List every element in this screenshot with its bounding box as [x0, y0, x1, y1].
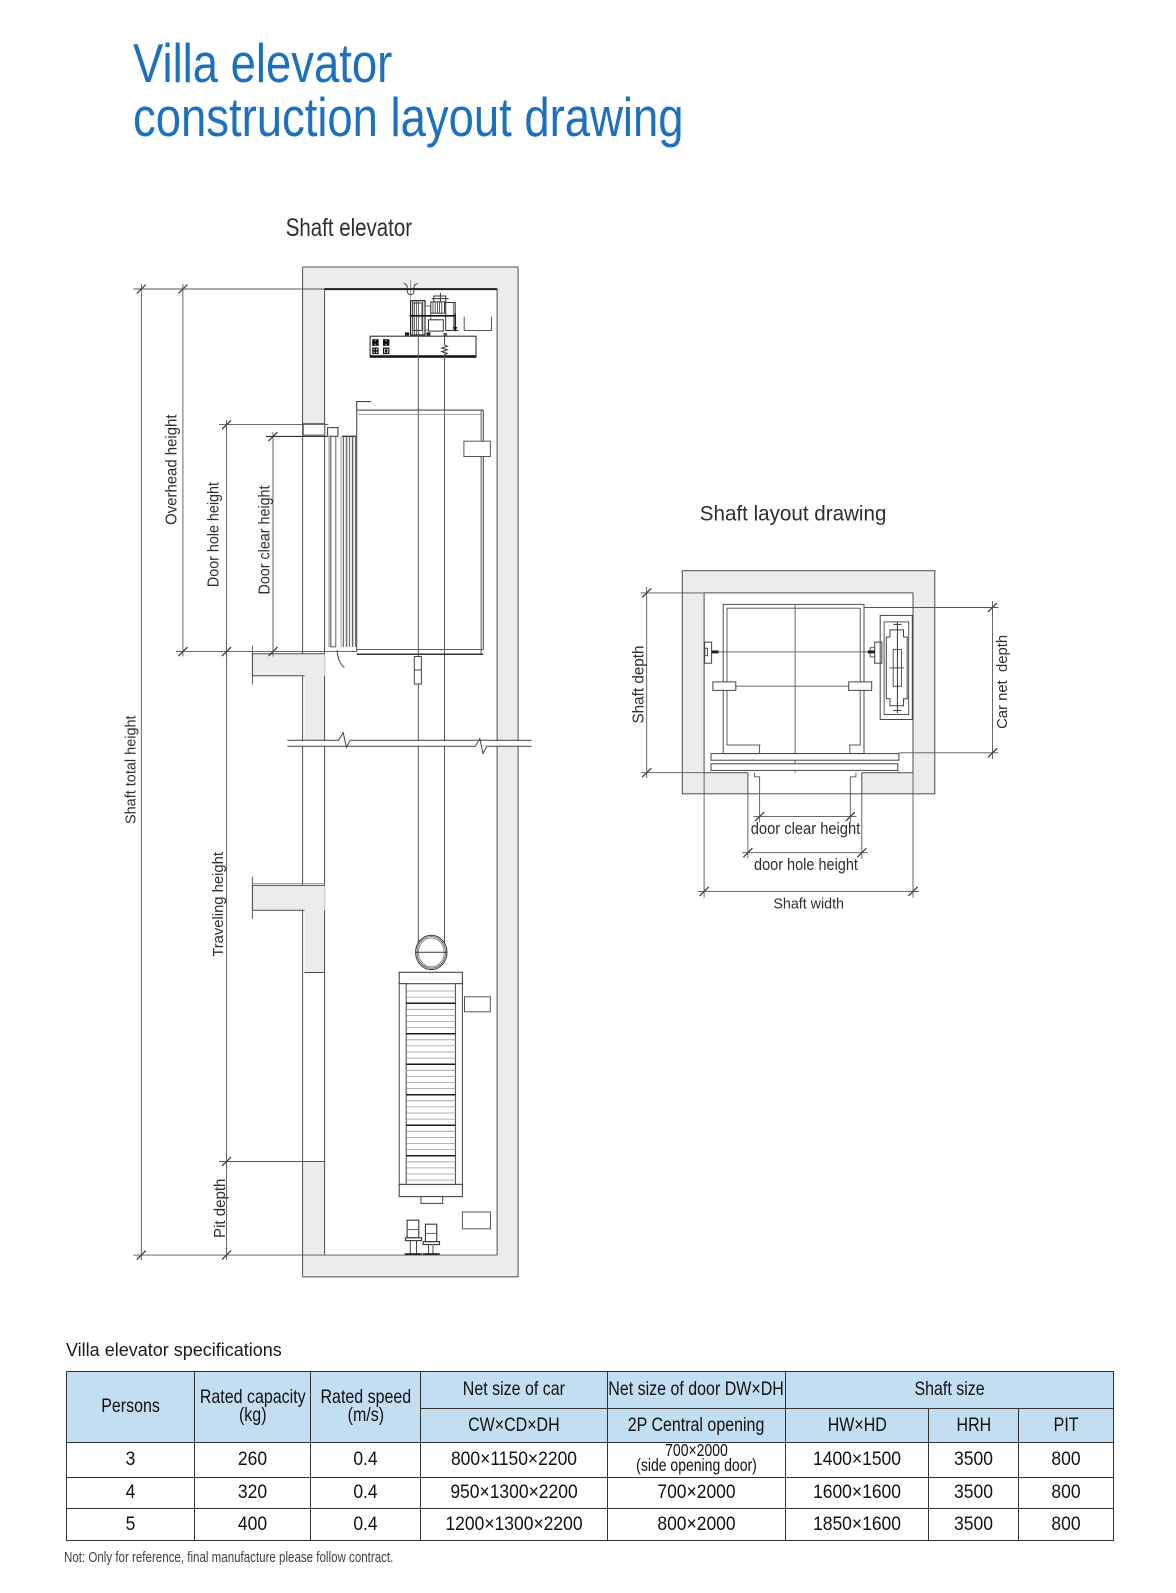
svg-text:Shaft layout drawing: Shaft layout drawing — [700, 501, 887, 525]
svg-text:Door hole height: Door hole height — [206, 481, 223, 587]
svg-text:Car net depth: Car net depth — [994, 635, 1011, 729]
svg-text:Shaft elevator: Shaft elevator — [286, 214, 412, 242]
svg-text:door clear height: door clear height — [751, 820, 861, 838]
svg-text:door hole height: door hole height — [754, 856, 858, 874]
svg-text:Pit depth: Pit depth — [212, 1179, 229, 1238]
svg-text:Shaft width: Shaft width — [773, 897, 844, 913]
svg-text:Traveling height: Traveling height — [210, 851, 227, 957]
svg-text:Shaft total height: Shaft total height — [123, 715, 140, 824]
svg-text:Door clear height: Door clear height — [256, 485, 273, 595]
svg-text:Shaft depth: Shaft depth — [631, 646, 648, 724]
svg-text:Overhead height: Overhead height — [163, 414, 180, 525]
